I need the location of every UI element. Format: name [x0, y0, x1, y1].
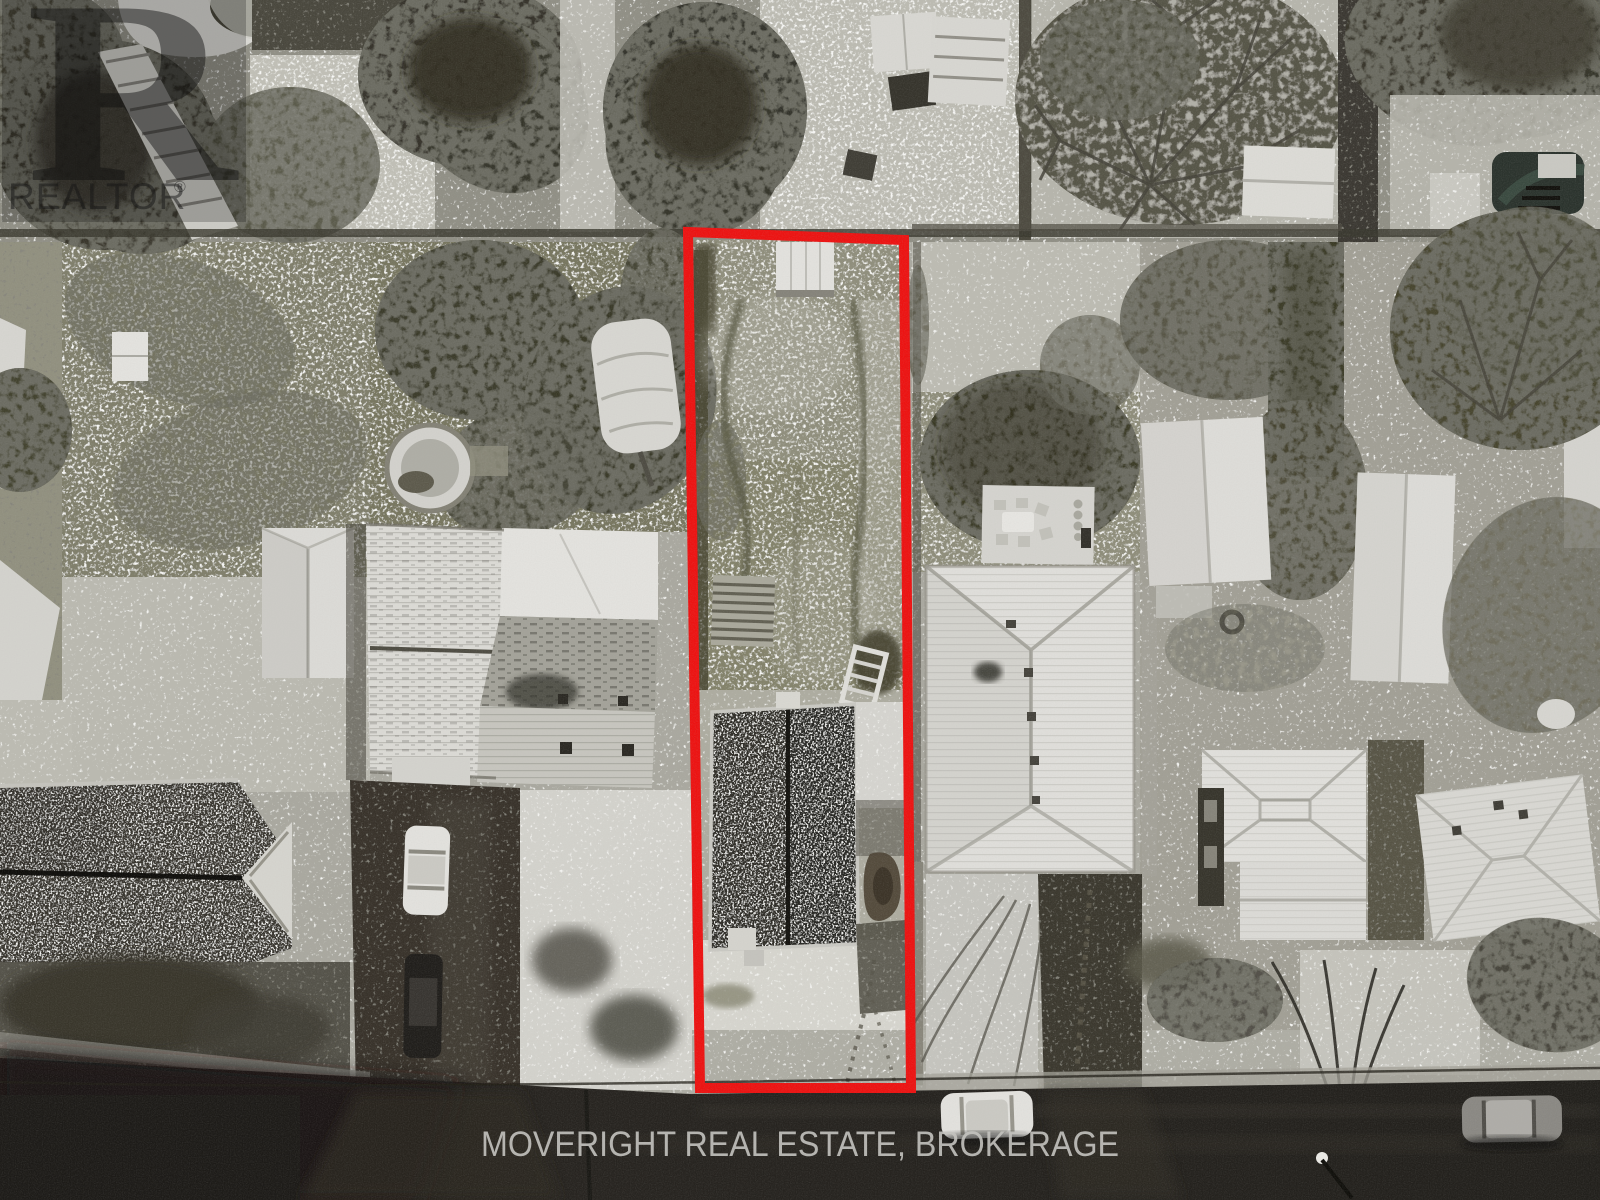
svg-text:®: ®: [174, 179, 186, 196]
svg-text:REALTOR: REALTOR: [8, 176, 186, 217]
svg-text:MOVERIGHT REAL ESTATE, BROKERA: MOVERIGHT REAL ESTATE, BROKERAGE: [481, 1125, 1119, 1164]
